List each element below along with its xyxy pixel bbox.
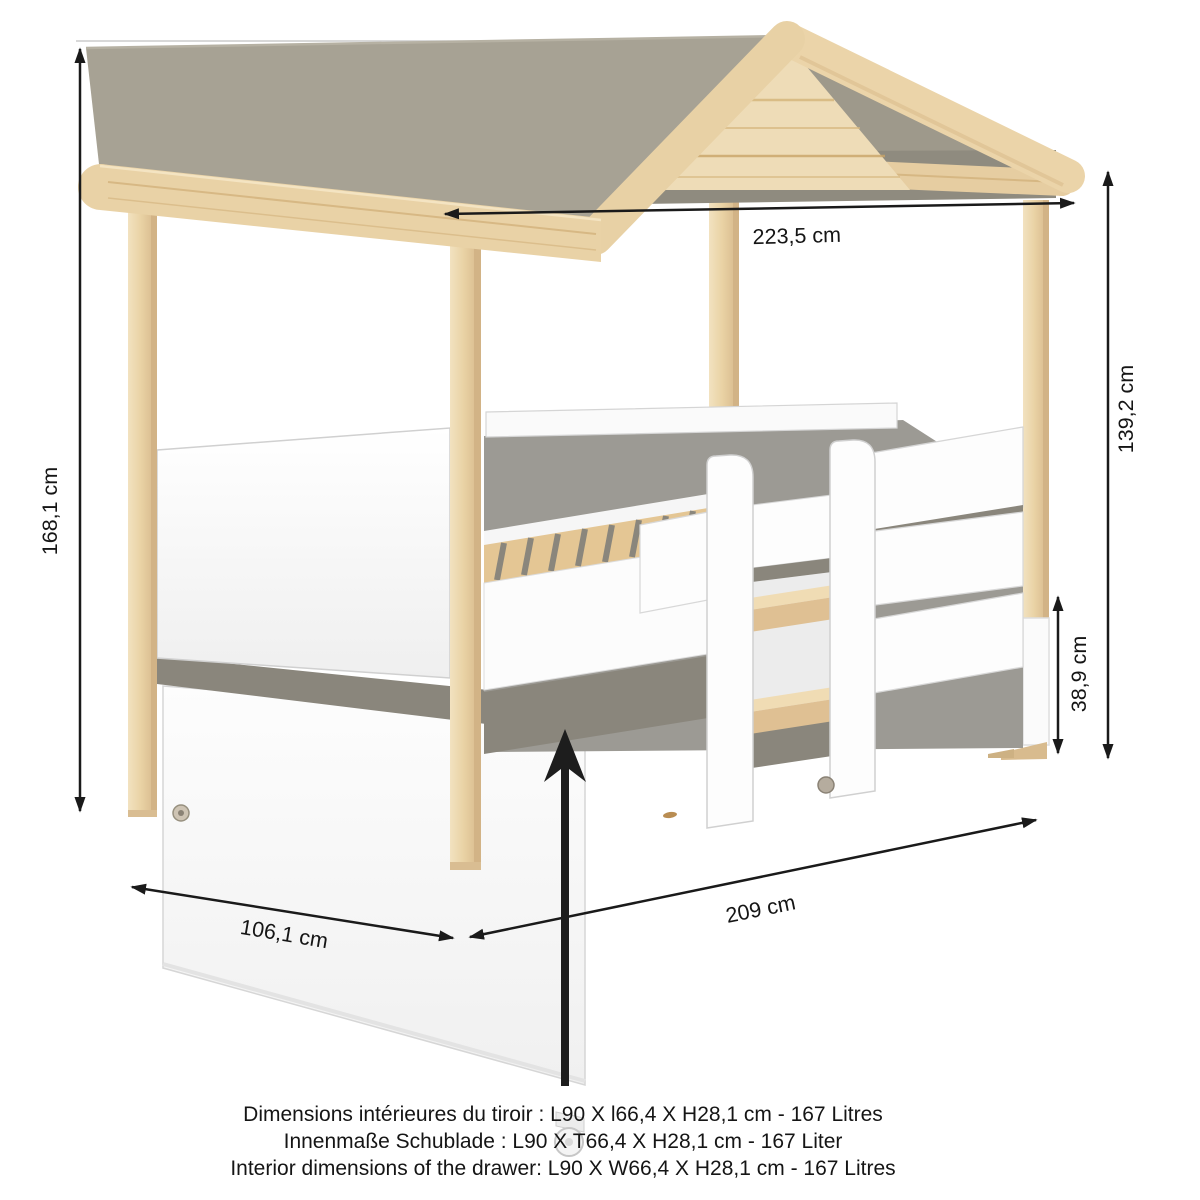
dim-drawer-height-label: 38,9 cm (1067, 636, 1091, 712)
ladder-stile-left (707, 455, 753, 828)
post-left-front (450, 243, 481, 870)
dim-roof-width-label: 223,5 cm (752, 223, 841, 249)
ladder-stile-right (830, 440, 875, 798)
footnote-de: Innenmaße Schublade : L90 X T66,4 X H28,… (284, 1130, 843, 1153)
dim-overall-height-label: 168,1 cm (38, 467, 62, 555)
footnote-en: Interior dimensions of the drawer: L90 X… (230, 1157, 895, 1180)
post-right-front-white-cover (1023, 618, 1049, 745)
drawer-caster-rear (173, 805, 189, 821)
end-panel (157, 428, 450, 678)
footnote-fr: Dimensions intérieures du tiroir : L90 X… (243, 1103, 883, 1126)
dimension-diagram: 223,5 cm 168,1 cm 139,2 cm 38,9 cm 209 c… (0, 0, 1200, 1200)
ladder-caster (818, 777, 834, 793)
post-left-rear (128, 203, 157, 817)
cabin-bed-illustration: 223,5 cm 168,1 cm 139,2 cm 38,9 cm 209 c… (0, 0, 1200, 1200)
guard-rail-left-segment (640, 512, 708, 613)
dim-canopy-height-label: 139,2 cm (1114, 365, 1138, 453)
footnotes: Dimensions intérieures du tiroir : L90 X… (230, 1103, 895, 1180)
